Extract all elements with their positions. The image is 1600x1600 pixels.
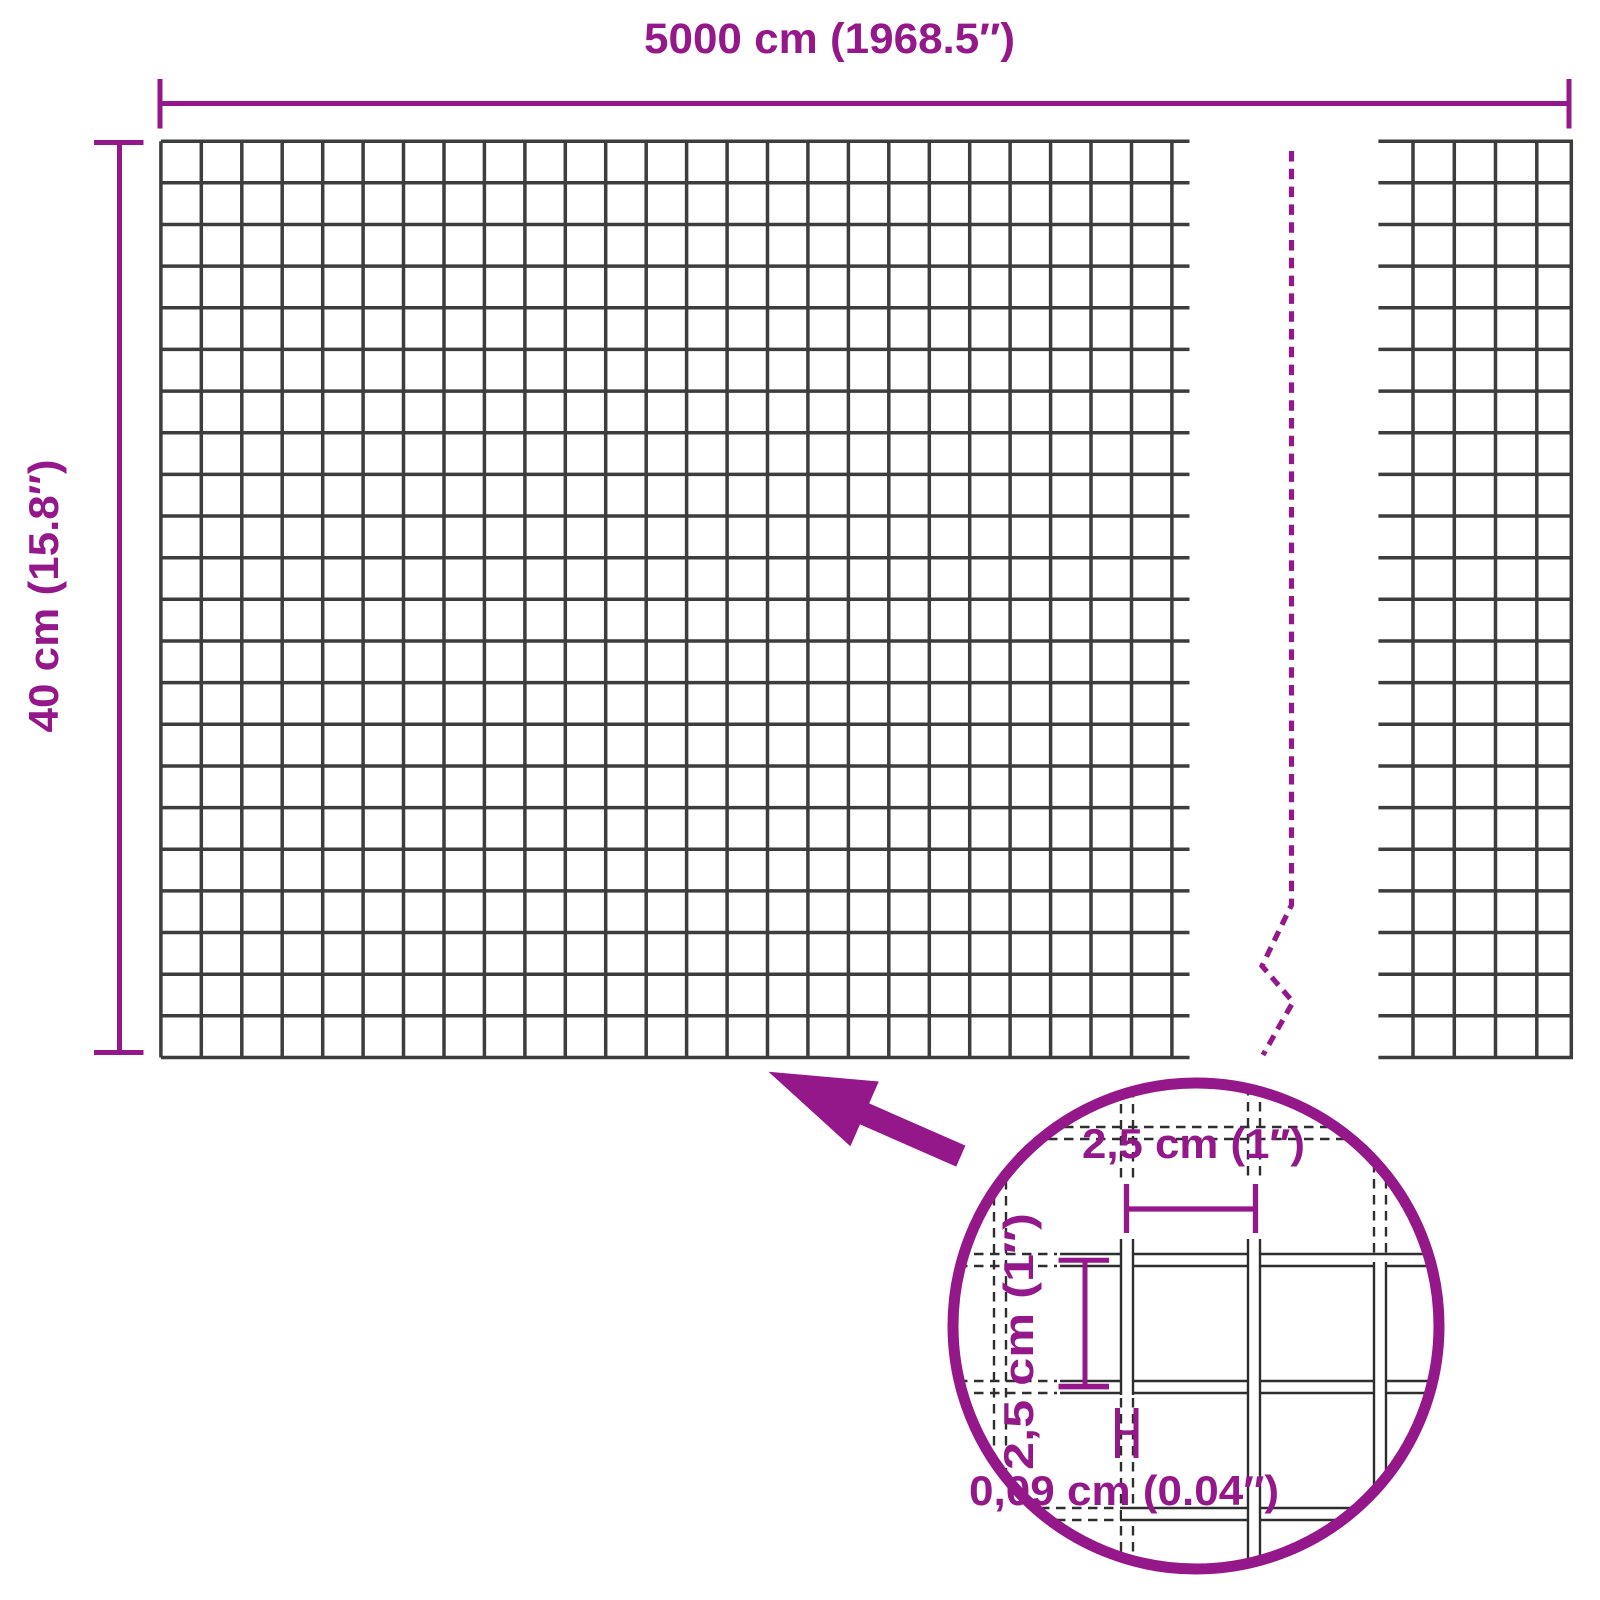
svg-text:2,5 cm (1″): 2,5 cm (1″)	[995, 1213, 1042, 1470]
svg-text:0,09 cm (0.04″): 0,09 cm (0.04″)	[969, 1467, 1279, 1514]
svg-text:40 cm (15.8″): 40 cm (15.8″)	[20, 460, 67, 733]
svg-text:5000 cm (1968.5″): 5000 cm (1968.5″)	[644, 16, 1015, 63]
svg-text:2,5 cm (1″): 2,5 cm (1″)	[1082, 1120, 1305, 1167]
